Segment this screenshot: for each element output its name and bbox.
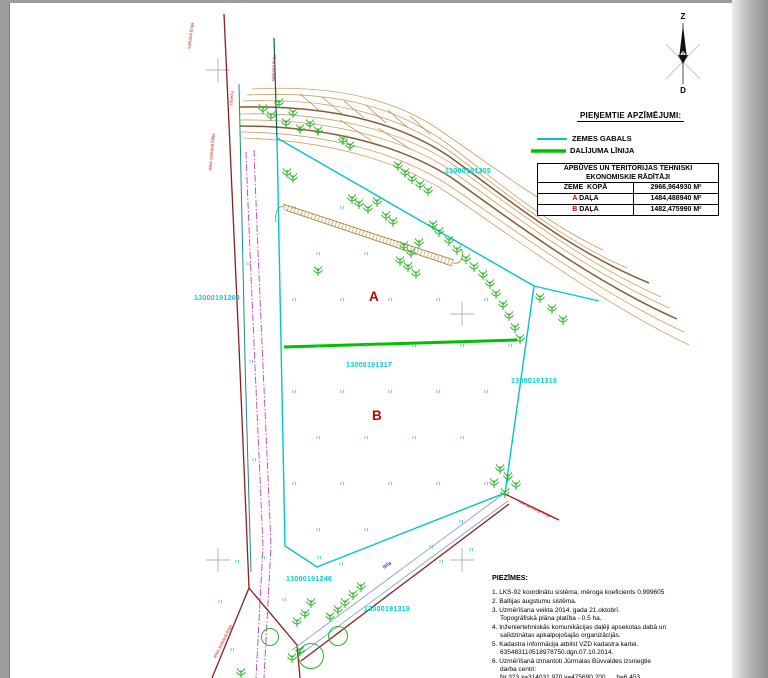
- table-row: A DAĻA 1484,488940 M²: [538, 193, 718, 204]
- note-line: 6. Uzmērīšanā izmantoti Jūrmalas Būvvald…: [492, 658, 722, 666]
- boundary-annotation: robeža: [228, 90, 234, 105]
- legend-title: PIEŅEMTIE APZĪMĒJUMI:: [577, 111, 684, 122]
- north-label: Z: [681, 12, 686, 21]
- table-header-line1: APBŪVES UN TERITORIJAS TEHNISKI: [538, 165, 718, 174]
- tree-canopies: [262, 627, 348, 669]
- fence-annotation: sarkanā līnija: [270, 54, 276, 81]
- table-header-line2: EKONOMISKIE RĀDĪTĀJI: [538, 174, 718, 183]
- legend-item-division: DALĪJUMA LĪNIJA: [570, 146, 634, 155]
- red-line-annotation: ielas sarkanā līnija: [207, 133, 215, 171]
- note-line: 4. Inženiertehniskās komunikācijas daļēj…: [492, 624, 722, 632]
- cadastral-number: 13000191319: [364, 606, 410, 613]
- red-line-annotation: iela sarkanā līnija: [518, 499, 552, 519]
- division-line: [284, 340, 517, 347]
- cadastral-number: 13000191318: [511, 378, 557, 385]
- grass-symbols: [219, 206, 511, 651]
- table-value: 2966,964930 M²: [634, 183, 718, 193]
- survey-plan-canvas: Z D 13000191305 13000191203 13000191317 …: [0, 0, 768, 678]
- note-line: salīdzinātas apkalpojošajās organizācijā…: [492, 632, 722, 640]
- note-line: Topogrāfiskā plāna platība - 0.5 ha.: [492, 615, 722, 623]
- legend-item-parcel: ZEMES GABALS: [572, 134, 632, 143]
- notes-block: PIEZĪMES: 1. LKS-92 koordinātu sistēma, …: [492, 573, 722, 678]
- note-line: darba centri:: [492, 666, 722, 674]
- south-label: D: [680, 86, 686, 95]
- red-line-annotation: sarkanā līnija: [186, 22, 195, 49]
- table-row: B DAĻA 1482,475990 M²: [538, 204, 718, 215]
- note-line: 2. Baltijas augstumu sistēma.: [492, 598, 722, 606]
- note-line: 5. Kadastra informācija atbilst VZD kada…: [492, 641, 722, 649]
- north-arrow: Z D: [666, 12, 700, 95]
- cadastral-labels: 13000191305 13000191203 13000191317 1300…: [194, 168, 557, 613]
- table-row: ZEME KOPĀ 2966,964930 M²: [538, 183, 718, 193]
- part-a-label: A: [369, 289, 379, 304]
- escarpment-band: [276, 204, 463, 266]
- cadastral-number: 13000191317: [346, 362, 392, 369]
- note-line: 1. LKS-92 koordinātu sistēma, mēroga koe…: [492, 589, 722, 597]
- table-value: 1484,488940 M²: [634, 194, 718, 204]
- table-header: APBŪVES UN TERITORIJAS TEHNISKI EKONOMIS…: [538, 164, 718, 183]
- indicators-table: APBŪVES UN TERITORIJAS TEHNISKI EKONOMIS…: [537, 163, 719, 216]
- note-line: 3. Uzmērīšana veikta 2014. gada 21.oktob…: [492, 607, 722, 615]
- fence-line: [274, 38, 277, 140]
- table-value: 1482,475990 M²: [634, 205, 718, 215]
- cadastral-number: 13000191305: [445, 168, 491, 175]
- cadastral-number: 13000191203: [194, 295, 240, 302]
- note-line: 635483110518978750.dgn.07.10.2014.: [492, 649, 722, 657]
- part-b-label: B: [372, 408, 382, 423]
- cadastral-number: 13000191246: [286, 576, 332, 583]
- note-line: Nr.323 x=314031.970 y=475690.200 h=6.453: [492, 674, 722, 678]
- road-name-label: iela: [382, 560, 394, 571]
- contour-lines: [240, 88, 689, 345]
- red-line-annotation: ielas sarkanā līnija: [212, 623, 233, 659]
- notes-title: PIEZĪMES:: [492, 573, 722, 582]
